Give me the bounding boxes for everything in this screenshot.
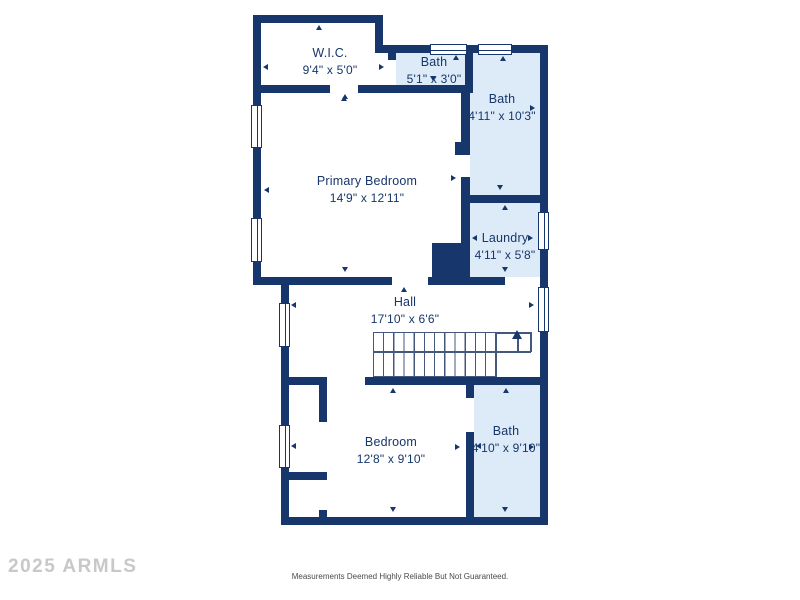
- room-dimensions: 4'10" x 9'10": [472, 441, 540, 455]
- room-name: Bath: [493, 424, 520, 438]
- room-label-primary-bedroom: Primary Bedroom 14'9" x 12'11": [317, 173, 417, 207]
- room-label-bath-bottom: Bath 4'10" x 9'10": [472, 423, 540, 457]
- room-name: Hall: [394, 295, 416, 309]
- room-dimensions: 14'9" x 12'11": [330, 191, 404, 205]
- dimension-arrow-icon: [316, 25, 322, 30]
- dimension-arrow-icon: [291, 443, 296, 449]
- staircase: [373, 332, 497, 377]
- dimension-arrow-icon: [291, 302, 296, 308]
- dimension-arrow-icon: [503, 388, 509, 393]
- dimension-arrow-icon: [341, 96, 347, 101]
- stair-walk-line: [373, 351, 531, 353]
- wall-laundry-bottom: [428, 277, 505, 285]
- stair-return-line: [530, 332, 532, 352]
- wall-hall-bottom: [365, 377, 548, 385]
- room-label-bath-ensuite: Bath 4'11" x 10'3": [468, 91, 536, 125]
- window-icon: [279, 303, 290, 347]
- wall-wic-top: [253, 15, 383, 23]
- room-name: W.I.C.: [312, 46, 347, 60]
- room-label-laundry: Laundry 4'11" x 5'8": [475, 230, 536, 264]
- stairs-up-arrow-icon: [512, 330, 522, 339]
- wall-wic-bottom-1: [253, 85, 330, 93]
- wall-right: [540, 45, 548, 525]
- wall-bottom: [281, 517, 548, 525]
- room-label-wic: W.I.C. 9'4" x 5'0": [303, 45, 358, 79]
- dimension-arrow-icon: [502, 267, 508, 272]
- wall-laundry-left: [461, 203, 470, 243]
- room-dimensions: 4'11" x 5'8": [475, 248, 536, 262]
- room-name: Bath: [421, 55, 448, 69]
- room-dimensions: 9'4" x 5'0": [303, 63, 358, 77]
- wall-closet-return: [319, 510, 327, 517]
- room-dimensions: 17'10" x 6'6": [371, 312, 439, 326]
- dimension-arrow-icon: [451, 175, 456, 181]
- dimension-arrow-icon: [342, 267, 348, 272]
- room-label-bedroom: Bedroom 12'8" x 9'10": [357, 434, 425, 468]
- wall-bath-bottom-divider-top: [466, 385, 474, 398]
- wall-ensuite-jog: [455, 142, 470, 155]
- wall-laundry-block: [432, 243, 470, 277]
- window-icon: [279, 425, 290, 468]
- floor-plan: W.I.C. 9'4" x 5'0" Bath 5'1" x 3'0" Bath…: [0, 0, 800, 600]
- wall-closet-stub-lower: [281, 472, 327, 480]
- window-icon: [538, 287, 549, 332]
- dimension-arrow-icon: [390, 507, 396, 512]
- dimension-arrow-icon: [390, 388, 396, 393]
- dimension-arrow-icon: [401, 287, 407, 292]
- dimension-arrow-icon: [500, 56, 506, 61]
- room-name: Bath: [489, 92, 516, 106]
- dimension-arrow-icon: [529, 302, 534, 308]
- dimension-arrow-icon: [455, 444, 460, 450]
- room-label-bath-top: Bath 5'1" x 3'0": [407, 54, 462, 88]
- stair-arrow-stem: [517, 339, 519, 352]
- wall-bath-top-left-stub: [388, 45, 396, 60]
- window-icon: [251, 218, 262, 262]
- room-name: Primary Bedroom: [317, 174, 417, 188]
- room-dimensions: 5'1" x 3'0": [407, 72, 462, 86]
- window-icon: [251, 105, 262, 148]
- dimension-arrow-icon: [497, 185, 503, 190]
- dimension-arrow-icon: [263, 64, 268, 70]
- room-label-hall: Hall 17'10" x 6'6": [371, 294, 439, 328]
- window-icon: [478, 44, 512, 55]
- room-name: Bedroom: [365, 435, 417, 449]
- dimension-arrow-icon: [502, 507, 508, 512]
- room-dimensions: 12'8" x 9'10": [357, 452, 425, 466]
- wall-primary-bottom: [253, 277, 392, 285]
- room-name: Laundry: [482, 231, 529, 245]
- dimension-arrow-icon: [379, 64, 384, 70]
- room-dimensions: 4'11" x 10'3": [468, 109, 536, 123]
- disclaimer-text: Measurements Deemed Highly Reliable But …: [0, 572, 800, 581]
- dimension-arrow-icon: [264, 187, 269, 193]
- wall-closet-divider: [319, 385, 327, 422]
- dimension-arrow-icon: [502, 205, 508, 210]
- window-icon: [538, 212, 549, 250]
- wall-closet-stub-upper: [281, 377, 327, 385]
- wall-ensuite-bottom: [461, 195, 548, 203]
